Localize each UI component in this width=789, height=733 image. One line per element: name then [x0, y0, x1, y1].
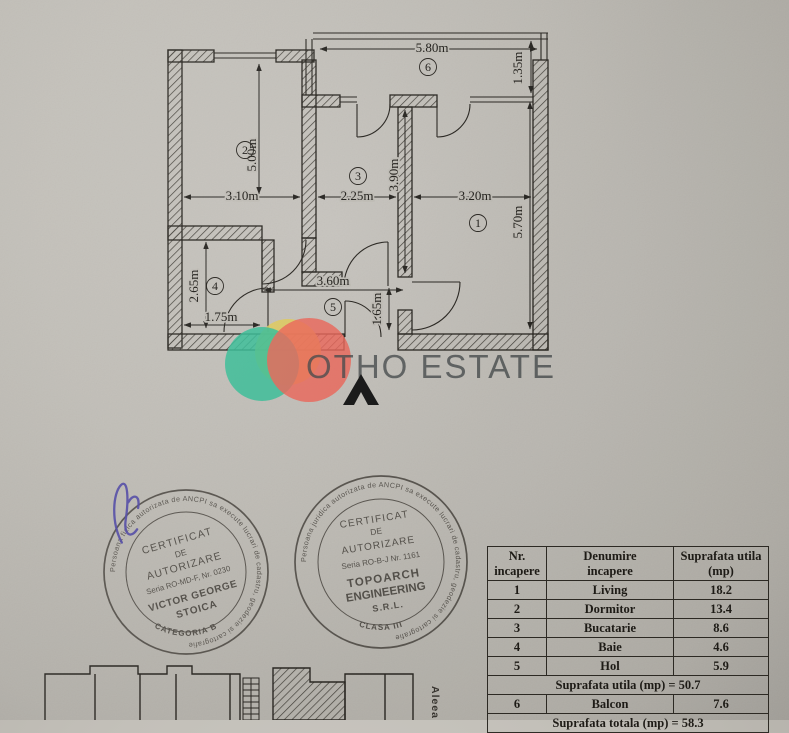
- wall: [302, 95, 340, 107]
- table-row: 3 Bucatarie 8.6: [488, 619, 769, 638]
- room-nr: 3: [488, 619, 547, 638]
- room-name: Baie: [547, 638, 674, 657]
- room-number: 6: [425, 60, 431, 74]
- wall: [302, 60, 316, 238]
- room-number: 5: [330, 300, 336, 314]
- room-nr: 2: [488, 600, 547, 619]
- table-row-balcony: 6 Balcon 7.6: [488, 695, 769, 714]
- wall: [302, 238, 316, 272]
- wall: [168, 50, 214, 62]
- room-name: Balcon: [547, 695, 674, 714]
- stamp-right-graphic: Persoana juridica autorizata de ANCPI sa…: [295, 476, 467, 648]
- room-number: 4: [212, 279, 218, 293]
- stamp-class-text: CLASA III: [358, 620, 404, 632]
- room-area: 5.9: [674, 657, 769, 676]
- room-area: 4.6: [674, 638, 769, 657]
- room-area: 18.2: [674, 581, 769, 600]
- subtotal-row: Suprafata utila (mp) = 50.7: [488, 676, 769, 695]
- table-row: 5 Hol 5.9: [488, 657, 769, 676]
- dim-label: 1.65m: [369, 293, 384, 326]
- stamp-center-text: CERTIFICAT DE AUTORIZARE Seria RO-MD-F, …: [131, 523, 242, 628]
- total-area: Suprafata totala (mp) = 58.3: [488, 714, 769, 733]
- room-number: 3: [355, 169, 361, 183]
- authorization-stamp-left: Persoana fizica autorizata de ANCPI sa e…: [84, 470, 289, 675]
- dim-label: 3.20m: [459, 188, 492, 203]
- table-header-row: Nr. incapere Denumire incapere Suprafata…: [488, 547, 769, 581]
- svg-text:DE: DE: [370, 525, 384, 537]
- header-denumire-incapere: Denumire incapere: [547, 547, 674, 581]
- header-nr-incapere: Nr. incapere: [488, 547, 547, 581]
- room-area: 8.6: [674, 619, 769, 638]
- table-row: 4 Baie 4.6: [488, 638, 769, 657]
- wall: [533, 60, 548, 350]
- total-row: Suprafata totala (mp) = 58.3: [488, 714, 769, 733]
- room-name: Hol: [547, 657, 674, 676]
- room-name: Bucatarie: [547, 619, 674, 638]
- dim-label: 3.60m: [317, 273, 350, 288]
- room-nr: 1: [488, 581, 547, 600]
- dim-label: 5.70m: [510, 206, 525, 239]
- stamp-left-graphic: Persoana fizica autorizata de ANCPI sa e…: [104, 482, 268, 654]
- room-area: 7.6: [674, 695, 769, 714]
- street-name-label: Aleea Rom: [429, 686, 441, 720]
- header-suprafata-utila: Suprafata utila (mp): [674, 547, 769, 581]
- wall: [398, 310, 412, 334]
- table-row: 2 Dormitor 13.4: [488, 600, 769, 619]
- stamp-category-text: CATEGORIA B: [153, 621, 218, 638]
- wall: [168, 50, 182, 348]
- dim-label: 5.80m: [416, 40, 449, 55]
- room-area: 13.4: [674, 600, 769, 619]
- logo-chevron-icon: [341, 372, 381, 405]
- room-areas-table: Nr. incapere Denumire incapere Suprafata…: [487, 546, 769, 733]
- authorization-stamp-right: Persoana juridica autorizata de ANCPI sa…: [283, 462, 493, 672]
- wall: [168, 226, 262, 240]
- room-nr: 4: [488, 638, 547, 657]
- wall: [390, 95, 437, 107]
- svg-text:S.R.L.: S.R.L.: [372, 599, 405, 614]
- dim-label: 1.75m: [205, 309, 238, 324]
- table-row: 1 Living 18.2: [488, 581, 769, 600]
- dim-label: 2.25m: [341, 188, 374, 203]
- dim-label: 1.35m: [510, 52, 525, 85]
- room-name: Dormitor: [547, 600, 674, 619]
- dim-label: 3.10m: [226, 188, 259, 203]
- room-nr: 6: [488, 695, 547, 714]
- room-number: 2: [242, 143, 248, 157]
- svg-text:DE: DE: [174, 547, 188, 560]
- dim-label: 3.90m: [386, 159, 401, 192]
- subtotal-useful-area: Suprafata utila (mp) = 50.7: [488, 676, 769, 695]
- scanned-floor-plan-document: { "plan": { "room_labels": ["1","2","3",…: [0, 0, 789, 720]
- dim-label: 2.65m: [186, 270, 201, 303]
- room-name: Living: [547, 581, 674, 600]
- room-nr: 5: [488, 657, 547, 676]
- stamp-center-text: CERTIFICAT DE AUTORIZARE Seria RO-B-J Nr…: [334, 508, 429, 617]
- room-number: 1: [475, 216, 481, 230]
